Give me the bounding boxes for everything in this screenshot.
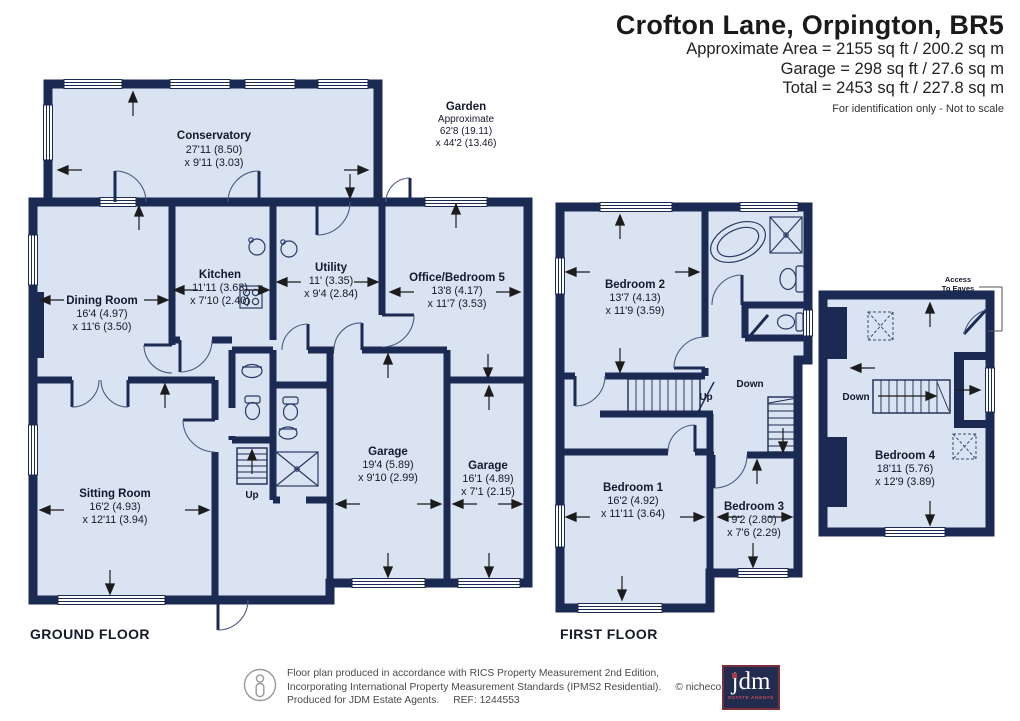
svg-text:16'2 (4.92): 16'2 (4.92)	[607, 495, 658, 507]
room-label-garden: Garden Approximate 62'8 (19.11) x 44'2 (…	[436, 101, 497, 149]
svg-text:Bedroom 3: Bedroom 3	[724, 501, 784, 513]
ground-main-rooms	[29, 198, 532, 604]
svg-text:Conservatory: Conservatory	[177, 130, 252, 142]
svg-text:x 12'11 (3.94): x 12'11 (3.94)	[83, 514, 148, 526]
rics-person-icon	[242, 667, 278, 703]
svg-text:11' (3.35): 11' (3.35)	[309, 275, 353, 287]
svg-text:62'8 (19.11): 62'8 (19.11)	[440, 126, 492, 137]
first-floor-plan: Up Down	[556, 203, 813, 643]
svg-text:x 9'11 (3.03): x 9'11 (3.03)	[185, 157, 244, 169]
room-label-sitting-room: Sitting Room 16'2 (4.93) x 12'11 (3.94)	[79, 488, 151, 526]
first-floor-label: FIRST FLOOR	[560, 626, 658, 642]
svg-text:x 44'2 (13.46): x 44'2 (13.46)	[436, 138, 497, 149]
room-label-bedroom-2: Bedroom 2 13'7 (4.13) x 11'9 (3.59)	[605, 279, 665, 317]
room-label-conservatory: Conservatory 27'11 (8.50) x 9'11 (3.03)	[177, 130, 252, 169]
svg-text:Sitting Room: Sitting Room	[79, 488, 151, 500]
svg-text:9'2 (2.80): 9'2 (2.80)	[731, 514, 776, 526]
second-down-label: Down	[842, 392, 869, 403]
svg-text:x 12'9 (3.89): x 12'9 (3.89)	[875, 476, 935, 488]
jdm-logo-dot	[732, 673, 737, 678]
room-label-bedroom-3: Bedroom 3 9'2 (2.80) x 7'6 (2.29)	[724, 501, 784, 539]
footer-line3: Produced for JDM Estate Agents.	[287, 695, 439, 706]
svg-text:x 11'7 (3.53): x 11'7 (3.53)	[428, 298, 487, 310]
svg-text:x 9'4 (2.84): x 9'4 (2.84)	[304, 288, 358, 300]
room-label-kitchen: Kitchen 11'11 (3.63) x 7'10 (2.40)	[190, 269, 250, 307]
svg-text:Approximate: Approximate	[438, 114, 495, 125]
svg-text:Bedroom 1: Bedroom 1	[603, 482, 664, 494]
svg-text:x 9'10 (2.99): x 9'10 (2.99)	[358, 472, 418, 484]
svg-text:Office/Bedroom 5: Office/Bedroom 5	[409, 272, 505, 284]
ground-up-label: Up	[245, 490, 258, 501]
svg-text:18'11 (5.76): 18'11 (5.76)	[877, 463, 933, 475]
svg-text:16'4 (4.97): 16'4 (4.97)	[76, 308, 127, 320]
jdm-logo-subtitle: ESTATE AGENTS	[724, 695, 778, 700]
svg-text:16'2 (4.93): 16'2 (4.93)	[89, 501, 140, 513]
room-label-bedroom-1: Bedroom 1 16'2 (4.92) x 11'11 (3.64)	[601, 482, 665, 520]
svg-text:13'8 (4.17): 13'8 (4.17)	[431, 285, 482, 297]
ground-floor-label: GROUND FLOOR	[30, 626, 150, 642]
cupboard-wall	[954, 420, 990, 428]
svg-text:Access: Access	[945, 275, 971, 284]
footer-ref: REF: 1244553	[453, 695, 519, 706]
footer-line1: Floor plan produced in accordance with R…	[287, 668, 659, 679]
svg-text:11'11 (3.63): 11'11 (3.63)	[192, 282, 248, 294]
svg-text:Garage: Garage	[368, 446, 408, 458]
jdm-logo: jdm ESTATE AGENTS	[722, 665, 780, 710]
conservatory-room	[44, 80, 382, 206]
svg-text:x 7'1 (2.15): x 7'1 (2.15)	[461, 486, 515, 498]
floorplan-page: Crofton Lane, Orpington, BR5 Approximate…	[0, 0, 1020, 721]
svg-text:Bedroom 4: Bedroom 4	[875, 450, 936, 462]
svg-text:Garage: Garage	[468, 460, 508, 472]
room-label-garage-2: Garage 16'1 (4.89) x 7'1 (2.15)	[461, 460, 515, 498]
svg-text:Kitchen: Kitchen	[199, 269, 241, 281]
floorplan-drawing: Up Conservato	[0, 0, 1020, 721]
footer: Floor plan produced in accordance with R…	[242, 667, 758, 708]
cupboard-wall	[954, 352, 990, 360]
svg-text:27'11 (8.50): 27'11 (8.50)	[186, 144, 242, 156]
svg-text:x 11'9 (3.59): x 11'9 (3.59)	[606, 305, 665, 317]
first-up-label: Up	[699, 392, 712, 403]
svg-text:x 7'6 (2.29): x 7'6 (2.29)	[727, 527, 781, 539]
first-down-label: Down	[736, 379, 763, 390]
second-windows-side	[986, 368, 995, 412]
room-label-dining-room: Dining Room 16'4 (4.97) x 11'6 (3.50)	[66, 295, 138, 333]
svg-text:x 11'11 (3.64): x 11'11 (3.64)	[601, 508, 665, 520]
eaves-wall	[827, 437, 847, 507]
footer-text: Floor plan produced in accordance with R…	[287, 667, 758, 708]
chimney-breast	[33, 292, 44, 358]
footer-line2: Incorporating International Property Mea…	[287, 682, 661, 693]
svg-text:x 11'6 (3.50): x 11'6 (3.50)	[73, 321, 132, 333]
svg-text:Utility: Utility	[315, 262, 348, 274]
svg-text:19'4 (5.89): 19'4 (5.89)	[362, 459, 413, 471]
svg-text:Bedroom 2: Bedroom 2	[605, 279, 665, 291]
svg-text:To Eaves: To Eaves	[942, 284, 974, 293]
second-windows	[885, 528, 945, 537]
svg-text:13'7 (4.13): 13'7 (4.13)	[609, 292, 660, 304]
svg-text:16'1 (4.89): 16'1 (4.89)	[462, 473, 513, 485]
svg-text:Dining Room: Dining Room	[66, 295, 138, 307]
ground-floor-plan: Up Conservato	[29, 80, 533, 643]
svg-text:x 7'10 (2.40): x 7'10 (2.40)	[190, 295, 250, 307]
svg-text:Garden: Garden	[446, 101, 486, 113]
eaves-wall	[827, 307, 847, 359]
room-label-bedroom-4: Bedroom 4 18'11 (5.76) x 12'9 (3.89)	[875, 450, 936, 488]
second-floor-plan: Down Access To Eaves Bedroom 4 18'11 (5.…	[819, 275, 1002, 537]
